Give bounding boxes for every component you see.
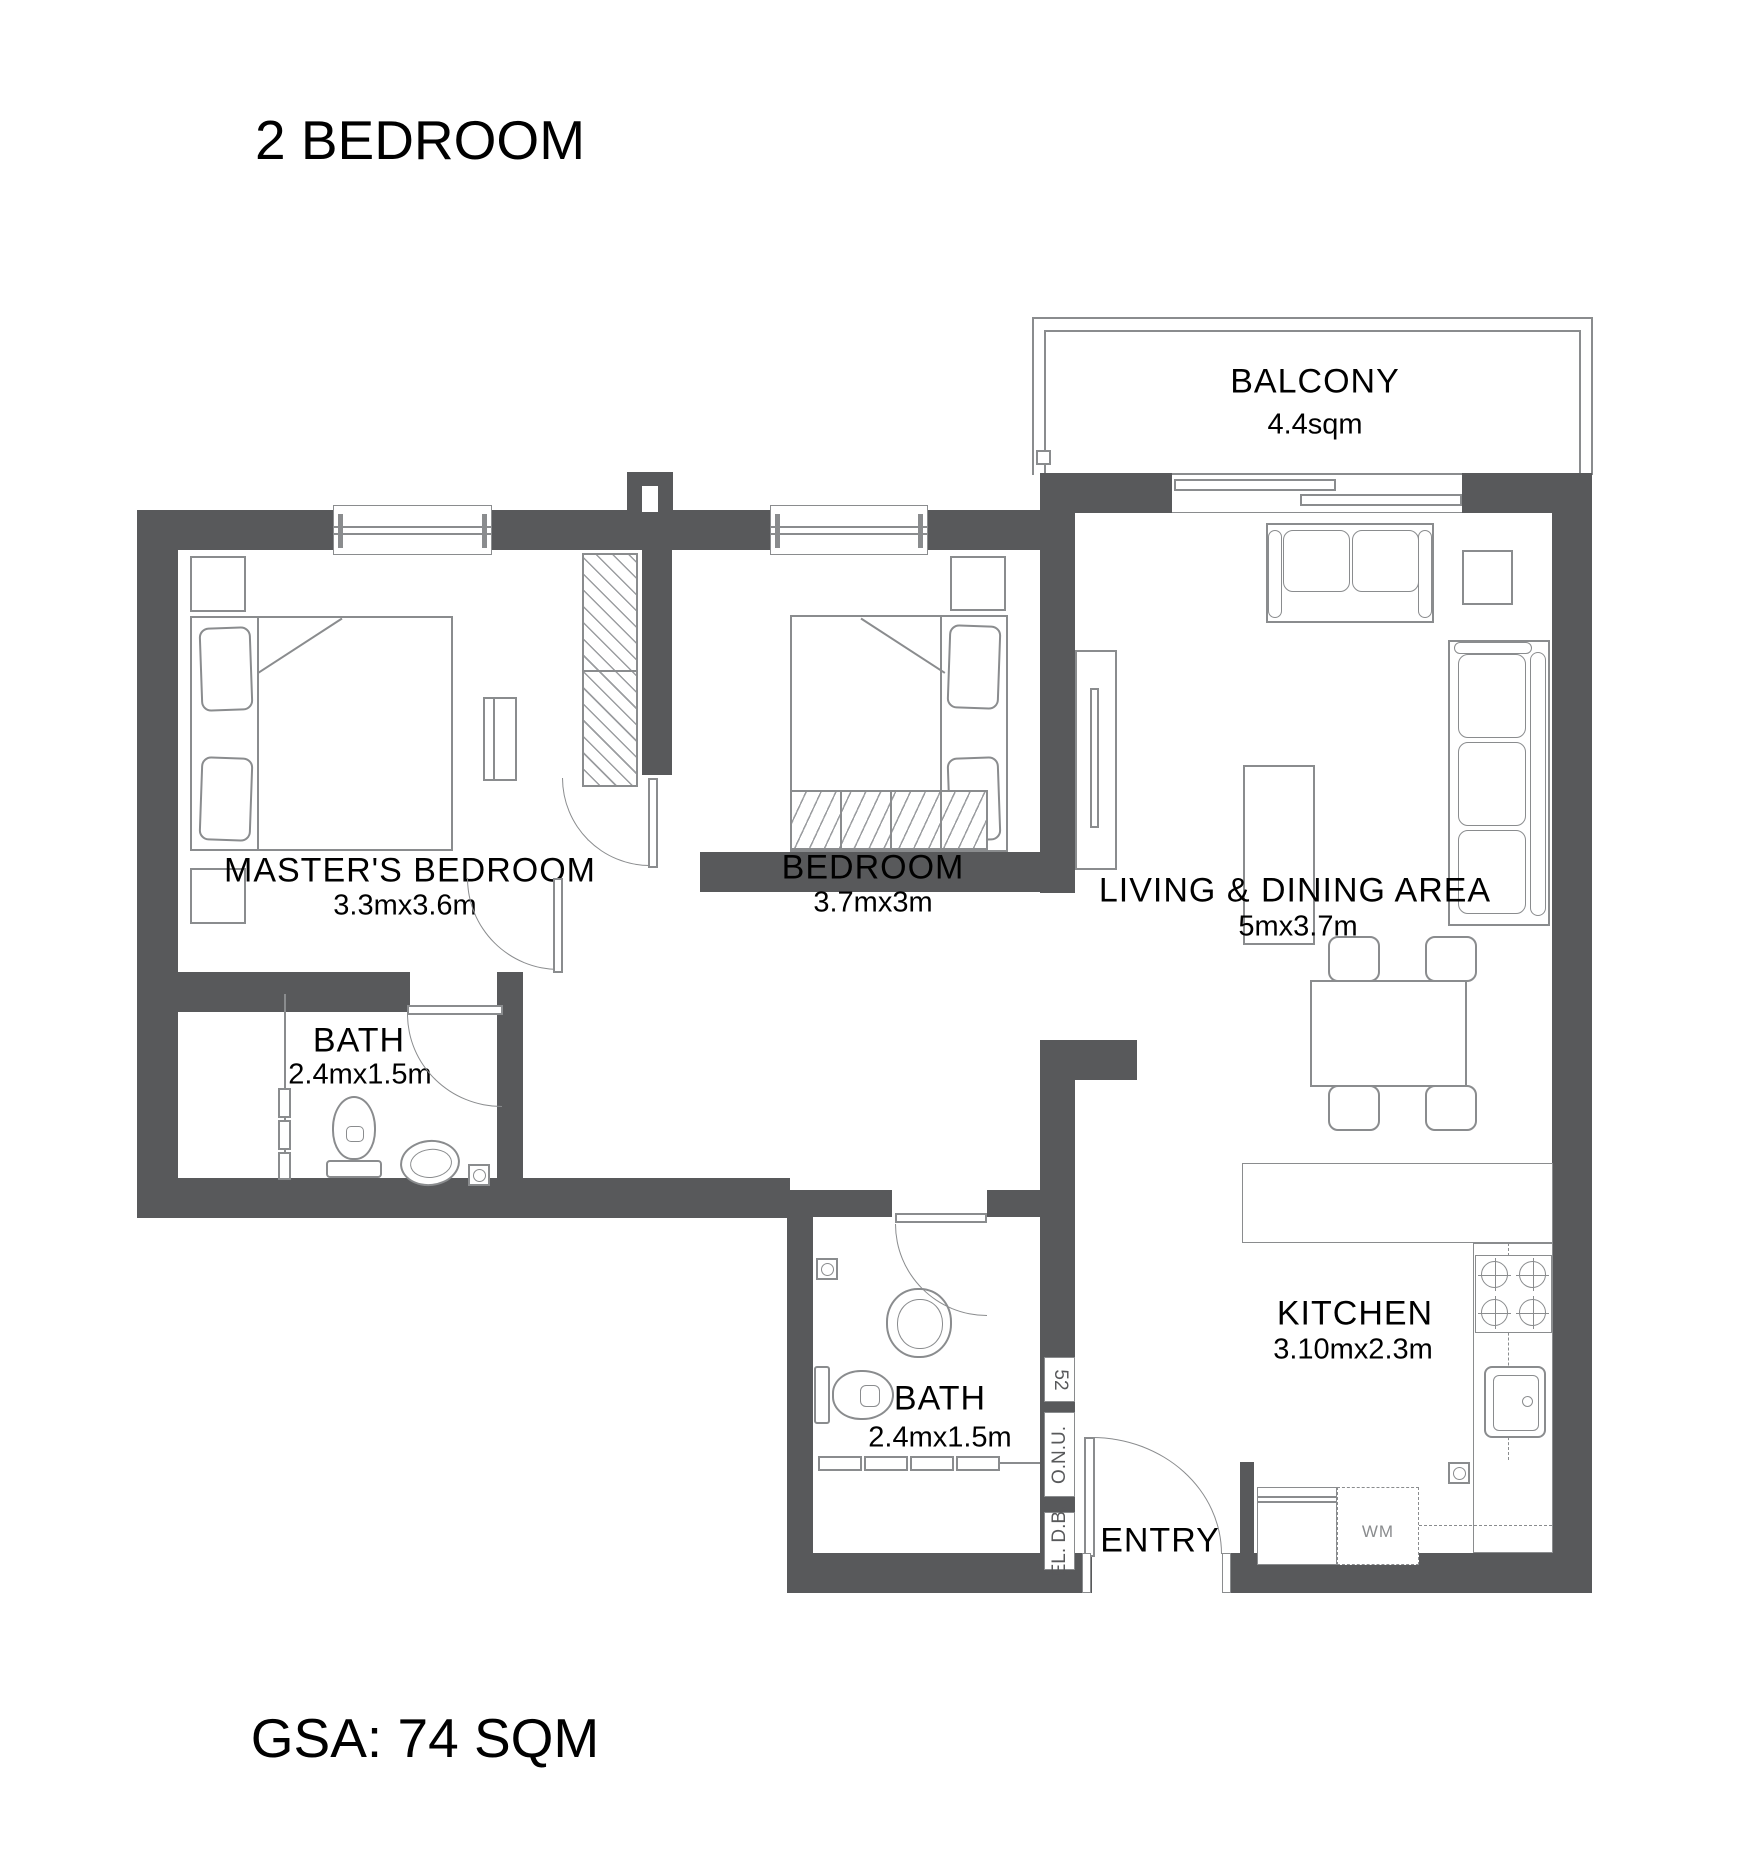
master-door-arc (467, 878, 559, 970)
master-door-leaf (553, 878, 563, 973)
living-dining-label: LIVING & DINING AREA (1099, 872, 1491, 911)
bath1-door-arc (407, 1014, 502, 1107)
balcony-drain (1036, 450, 1051, 465)
wall-bottom-left (137, 1178, 790, 1218)
bath1-door-leaf (407, 1005, 503, 1015)
dining-table (1310, 980, 1467, 1087)
stove-burner-3 (1481, 1299, 1508, 1326)
eldb-label: EL. D.B. (1049, 1506, 1071, 1577)
kitchen-sink (1484, 1366, 1546, 1438)
entry-jamb-left (1082, 1553, 1091, 1593)
kitchen-fridge (1257, 1487, 1337, 1565)
onu-label: O.N.U. (1049, 1426, 1071, 1484)
master-bedroom-dims: 3.3mx3.6m (333, 890, 476, 923)
dining-chair-3 (1328, 1085, 1380, 1131)
bedroom-dims: 3.7mx3m (813, 887, 932, 920)
bath2-door-leaf (895, 1213, 987, 1223)
wall-right-outer (1552, 473, 1592, 1593)
balcony-sliding-door (1172, 471, 1462, 515)
shaft-label: 52 (1049, 1369, 1071, 1390)
bedroom-label: BEDROOM (782, 849, 965, 888)
duct-notch (642, 486, 658, 512)
wall-bedroom2-left (642, 550, 672, 775)
tv-screen (1090, 688, 1099, 828)
bath1-toilet-bowl (332, 1096, 376, 1160)
stove-burner-2 (1519, 1261, 1546, 1288)
bath2-toilet-bowl (832, 1370, 894, 1420)
kitchen-counter-top (1242, 1163, 1553, 1243)
dining-chair-2 (1425, 936, 1477, 982)
wall-left-outer (137, 510, 178, 1218)
dining-chair-4 (1425, 1085, 1477, 1131)
wall-hall-corner-v (1040, 1040, 1075, 1193)
master-pillow-1 (199, 626, 254, 712)
master-nightstand-top (190, 556, 246, 612)
bath1-label: BATH (313, 1022, 405, 1061)
bedroom-window (770, 505, 928, 555)
living-dining-dims: 5mx3.7m (1238, 911, 1357, 944)
master-wardrobe (582, 553, 638, 787)
side-table (1462, 550, 1513, 605)
entry-jamb-right (1222, 1553, 1231, 1593)
wall-living-bedroom2 (1040, 513, 1075, 893)
bath2-drain (816, 1258, 838, 1280)
stove-burner-4 (1519, 1299, 1546, 1326)
floor-plan: 2 BEDROOM GSA: 74 SQM BALCONY 4.4sqm (0, 0, 1746, 1855)
bath2-label: BATH (894, 1380, 986, 1419)
bedroom-door-leaf (648, 778, 658, 868)
wall-kitchen-entry-stub (1240, 1462, 1254, 1553)
master-pillow-2 (199, 756, 254, 842)
loveseat-sofa (1266, 523, 1434, 623)
balcony-dims: 4.4sqm (1267, 409, 1362, 442)
entry-label: ENTRY (1100, 1522, 1220, 1561)
bedroom-nightstand (950, 556, 1006, 611)
bath2-toilet-tank (814, 1366, 830, 1424)
master-bedroom-window (333, 505, 492, 555)
bedroom-pillow-1 (947, 624, 1002, 710)
bath1-drain (468, 1164, 490, 1186)
bath2-dims: 2.4mx1.5m (868, 1422, 1011, 1455)
plan-title: 2 BEDROOM (255, 108, 585, 172)
kitchen-drain (1448, 1462, 1470, 1484)
bedroom-closet (790, 790, 988, 850)
bath1-toilet-tank (326, 1160, 382, 1178)
wall-bath2-left (787, 1190, 813, 1593)
kitchen-label: KITCHEN (1277, 1295, 1433, 1334)
balcony-label: BALCONY (1230, 363, 1400, 402)
entry-door-leaf (1084, 1437, 1095, 1557)
bath1-dims: 2.4mx1.5m (288, 1059, 431, 1092)
stove-burner-1 (1481, 1261, 1508, 1288)
master-dresser (483, 697, 517, 781)
washing-machine-label: WM (1362, 1522, 1394, 1542)
plan-area-footer: GSA: 74 SQM (251, 1706, 599, 1770)
kitchen-dims: 3.10mx2.3m (1273, 1334, 1433, 1367)
wall-bath1-top (178, 972, 410, 1012)
wall-bath2-top-right (987, 1190, 1040, 1217)
